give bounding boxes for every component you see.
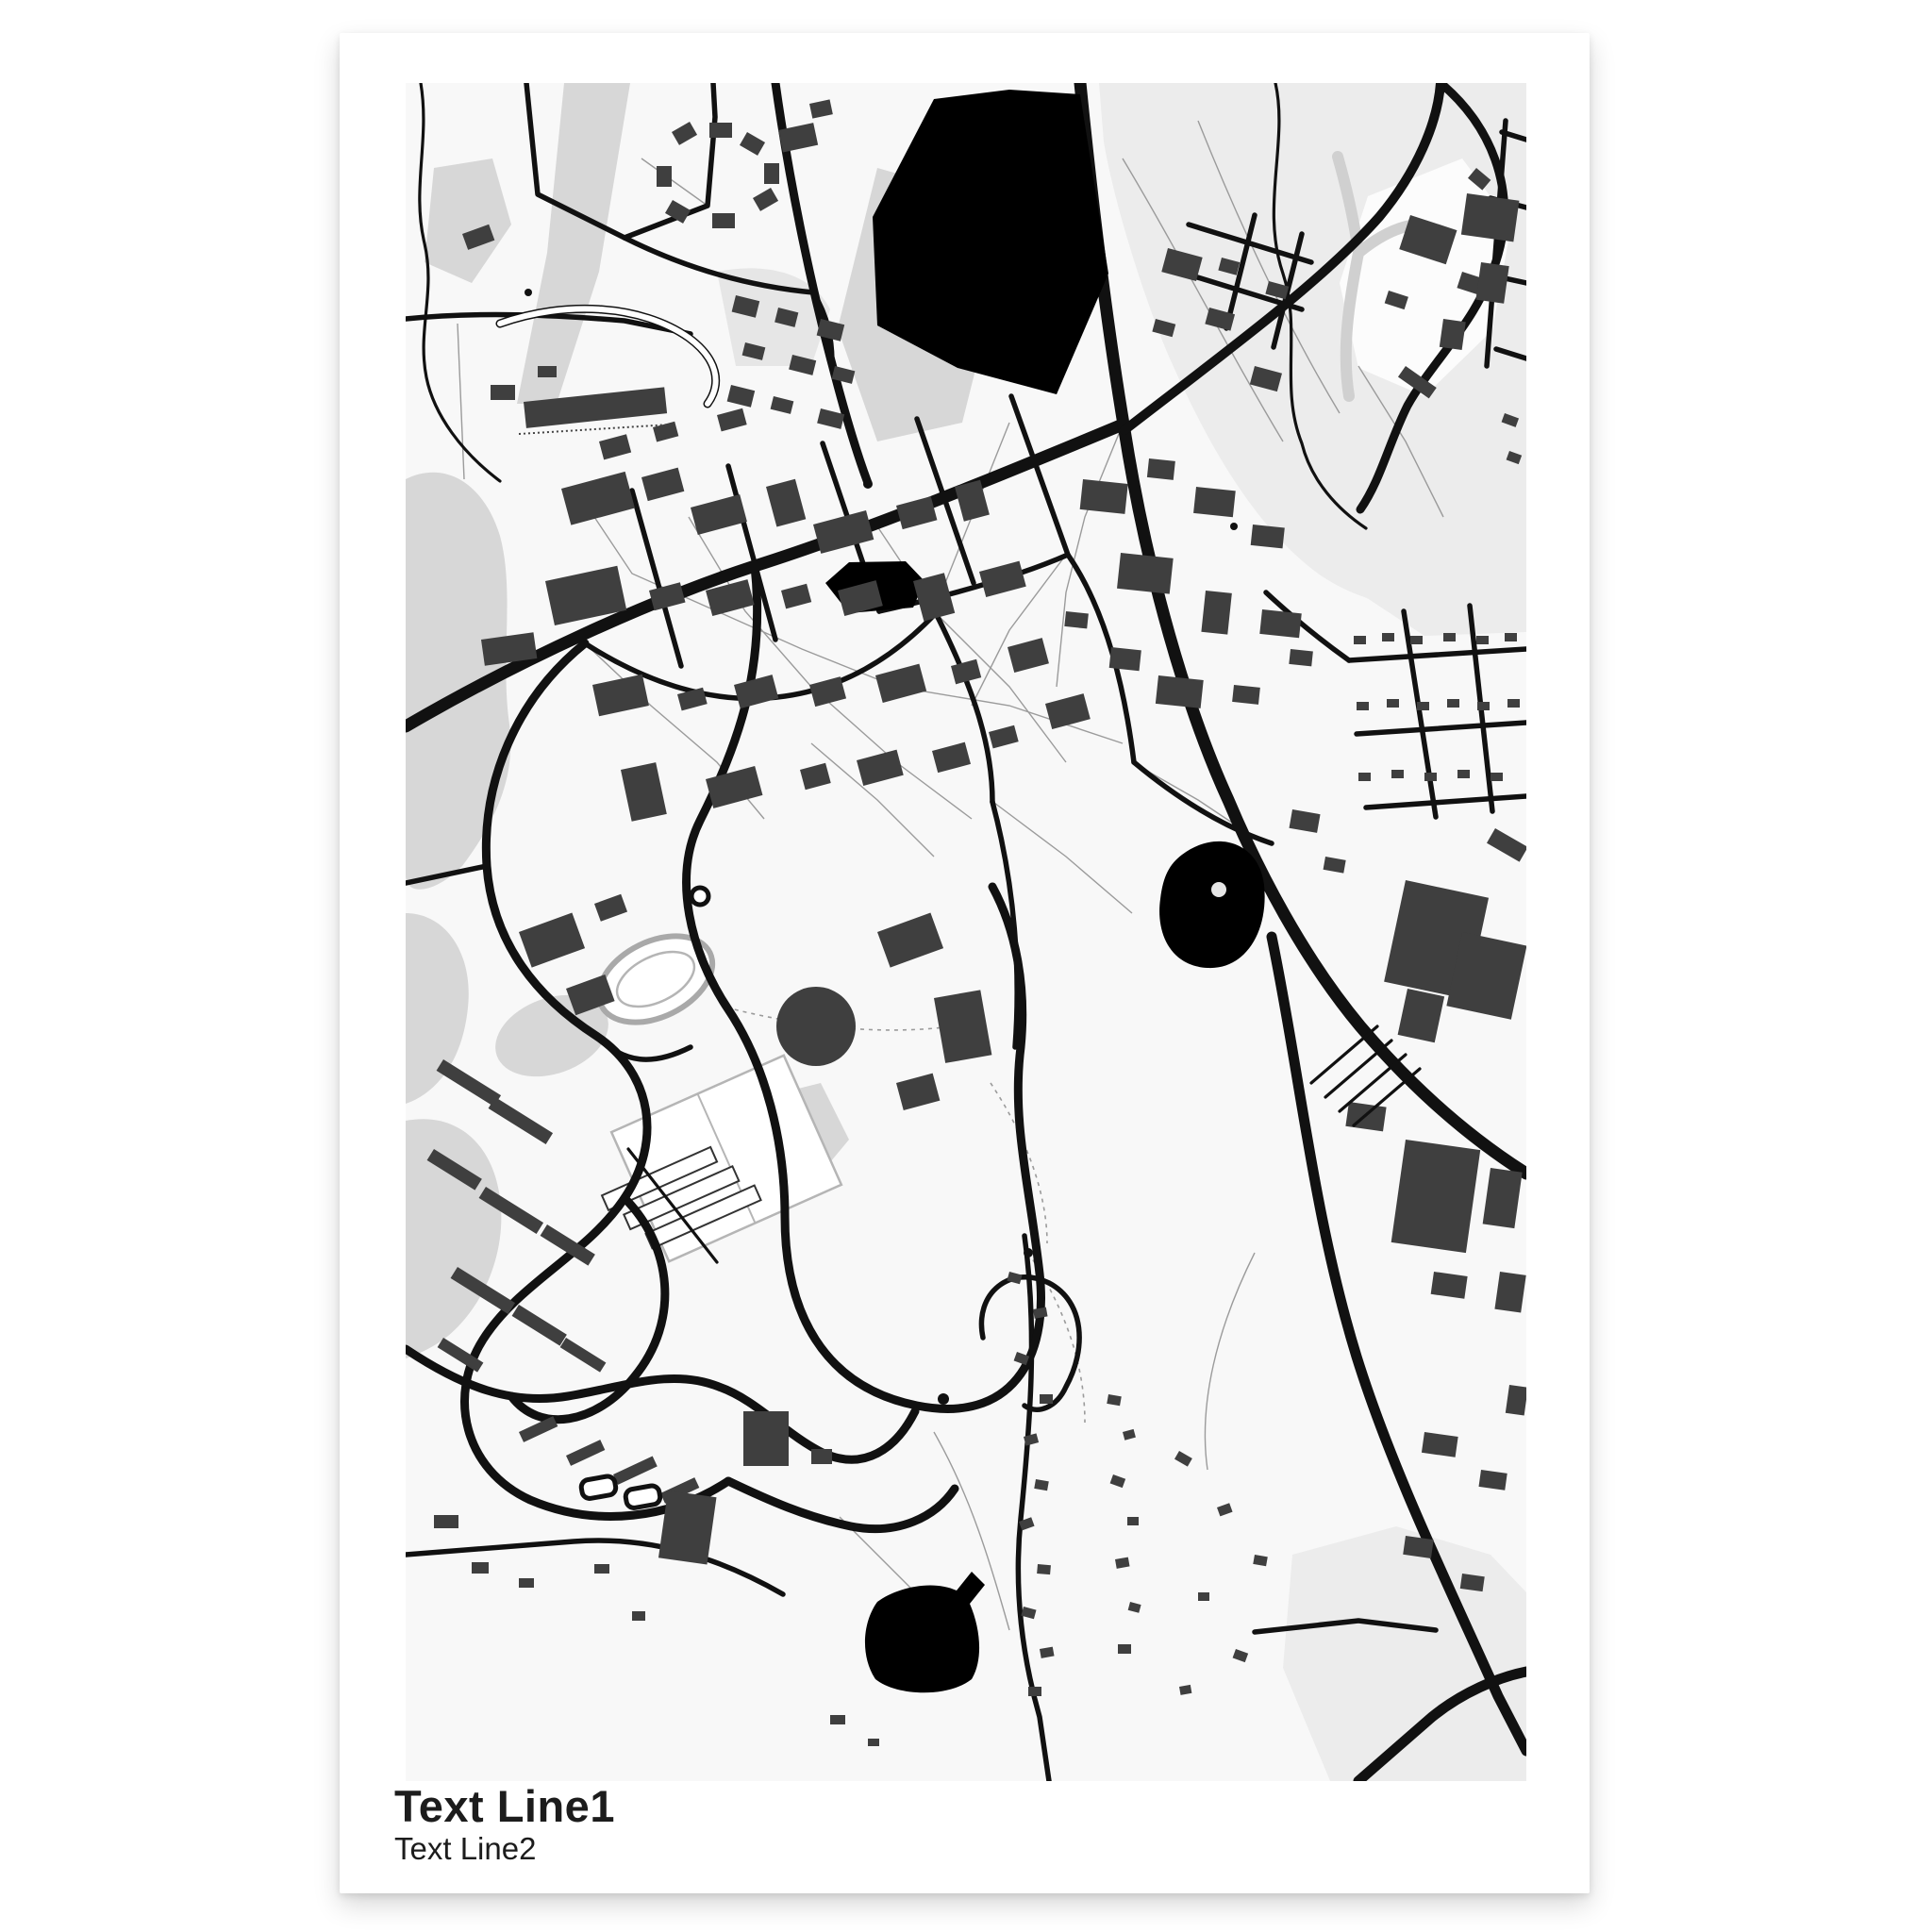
- page-background: Text Line1 Text Line2: [0, 0, 1932, 1932]
- lake-island: [1211, 882, 1226, 897]
- city-map-graphic: [406, 83, 1526, 1781]
- poster-caption: Text Line1 Text Line2: [394, 1784, 615, 1866]
- map-print-area: [406, 83, 1526, 1781]
- poster-subtitle: Text Line2: [394, 1832, 615, 1866]
- map-poster-print: Text Line1 Text Line2: [340, 33, 1590, 1893]
- poster-title: Text Line1: [394, 1784, 615, 1830]
